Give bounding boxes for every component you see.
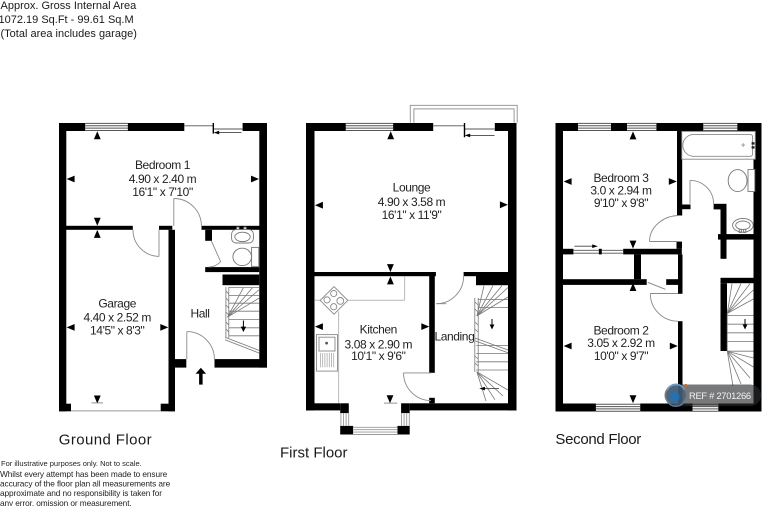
svg-text:Whilst every attempt has been: Whilst every attempt has been made to en… — [0, 469, 168, 479]
svg-text:Garage: Garage — [98, 297, 136, 311]
svg-text:REF # 2701266: REF # 2701266 — [689, 390, 751, 401]
svg-text:any error, omission or measure: any error, omission or measurement. — [0, 498, 132, 506]
svg-text:approximate and no responsibil: approximate and no responsibility is tak… — [0, 488, 162, 498]
svg-text:Bedroom 1: Bedroom 1 — [135, 158, 191, 172]
svg-text:4.90 x 2.40 m: 4.90 x 2.40 m — [129, 172, 197, 186]
svg-text:Ground Floor: Ground Floor — [59, 432, 152, 449]
svg-text:accuracy of the floor plan all: accuracy of the floor plan all measureme… — [0, 479, 171, 489]
svg-text:Landing: Landing — [434, 329, 474, 343]
svg-text:14'5" x 8'3": 14'5" x 8'3" — [90, 323, 144, 337]
svg-text:First Floor: First Floor — [280, 444, 348, 461]
svg-text:Hall: Hall — [190, 307, 209, 321]
svg-text:Approx. Gross Internal Area: Approx. Gross Internal Area — [1, 0, 138, 12]
svg-text:For illustrative purposes only: For illustrative purposes only. Not to s… — [1, 459, 142, 468]
svg-text:10'0" x 9'7": 10'0" x 9'7" — [594, 349, 648, 363]
svg-text:4.40 x 2.52 m: 4.40 x 2.52 m — [83, 311, 151, 325]
svg-text:16'1" x 11'9": 16'1" x 11'9" — [382, 208, 442, 222]
svg-text:(Total area includes garage): (Total area includes garage) — [1, 28, 137, 40]
svg-text:1072.19 Sq.Ft - 99.61 Sq.M: 1072.19 Sq.Ft - 99.61 Sq.M — [0, 14, 134, 26]
svg-text:Kitchen: Kitchen — [360, 323, 397, 337]
svg-text:Second Floor: Second Floor — [555, 431, 641, 448]
svg-text:9'10" x 9'8": 9'10" x 9'8" — [594, 196, 648, 210]
svg-text:Lounge: Lounge — [393, 181, 431, 195]
svg-text:16'1" x 7'10": 16'1" x 7'10" — [132, 185, 193, 199]
svg-text:10'1" x 9'6": 10'1" x 9'6" — [351, 349, 405, 363]
